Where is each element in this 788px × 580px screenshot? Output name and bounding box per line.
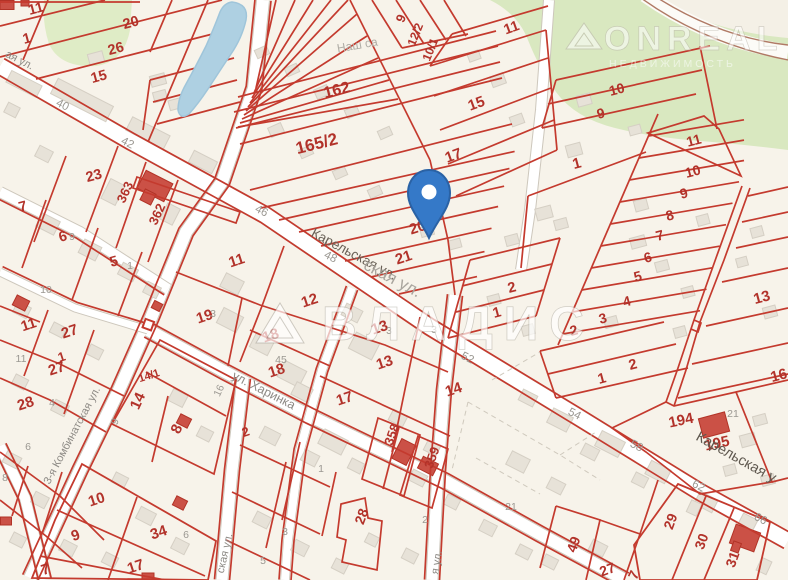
svg-text:3: 3 <box>282 526 288 538</box>
svg-text:4: 4 <box>49 397 55 409</box>
svg-text:21: 21 <box>727 408 739 420</box>
svg-text:1: 1 <box>318 463 324 475</box>
svg-text:3: 3 <box>210 308 216 320</box>
svg-text:НЕДВИЖИМОСТЬ: НЕДВИЖИМОСТЬ <box>609 58 736 70</box>
svg-text:10: 10 <box>40 284 52 296</box>
svg-text:ВЛАДИС: ВЛАДИС <box>322 298 595 351</box>
svg-text:11: 11 <box>16 353 27 365</box>
svg-text:45: 45 <box>275 354 287 366</box>
svg-text:6: 6 <box>25 441 31 453</box>
svg-text:5: 5 <box>260 555 266 567</box>
svg-text:1: 1 <box>127 260 133 272</box>
svg-text:ONREAL: ONREAL <box>604 20 784 58</box>
svg-text:21: 21 <box>505 501 517 513</box>
svg-text:8: 8 <box>2 472 8 484</box>
svg-text:9: 9 <box>69 231 75 243</box>
svg-text:2: 2 <box>422 514 428 526</box>
svg-text:6: 6 <box>183 529 189 541</box>
